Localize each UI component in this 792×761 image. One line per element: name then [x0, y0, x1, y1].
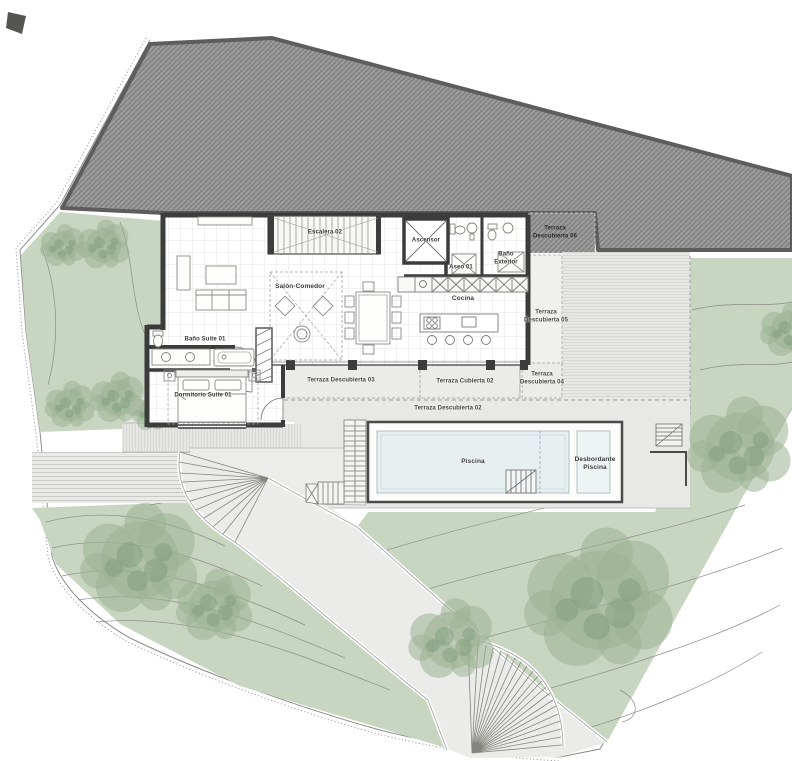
pool-overflow: [577, 431, 610, 493]
pool-steps: [506, 470, 536, 493]
stair-escalera-02: [268, 216, 381, 254]
elevator-ascensor: [404, 219, 448, 263]
site-plan-screenshot: Escalera 02 Ascensor Aseo 01 Baño Exteri…: [0, 0, 792, 761]
site-plan-drawing: [0, 0, 792, 761]
corner-mark: [6, 12, 26, 34]
suite-bedroom: [164, 370, 260, 424]
fireplace-column: [256, 328, 272, 382]
pool: [368, 422, 622, 502]
